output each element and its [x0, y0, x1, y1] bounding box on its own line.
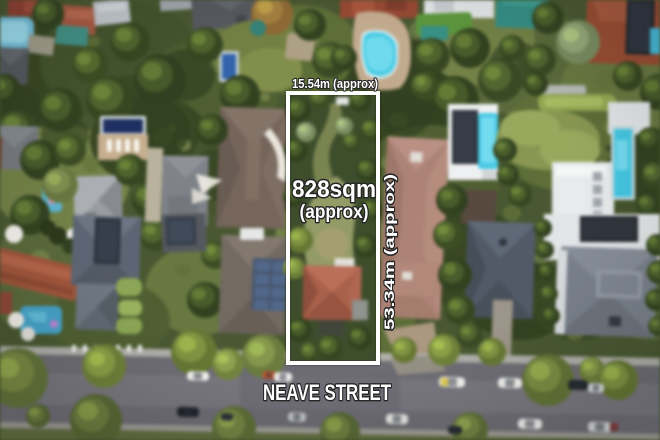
svg-text:828sqm: 828sqm	[292, 176, 376, 203]
svg-text:NEAVE STREET: NEAVE STREET	[263, 380, 391, 405]
svg-text:53.34m (approx): 53.34m (approx)	[382, 174, 397, 330]
svg-text:15.54m (approx): 15.54m (approx)	[292, 76, 378, 91]
svg-text:(approx): (approx)	[300, 202, 369, 223]
